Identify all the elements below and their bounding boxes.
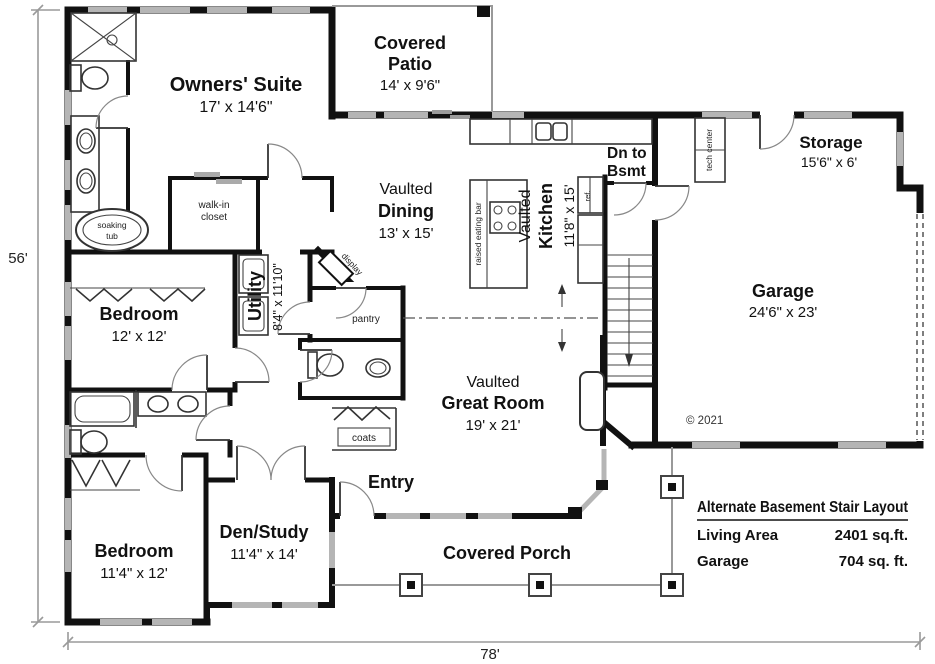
hall-door (235, 348, 269, 382)
garage-dims: 24'6" x 23' (749, 304, 818, 321)
kitchen-prefix: Vaulted (517, 189, 534, 242)
porch-posts (400, 476, 683, 596)
ref-label: ref. (583, 191, 592, 202)
sink (366, 359, 390, 377)
kitchen-label: Kitchen (536, 183, 556, 249)
walk-in-closet-label-1: walk-in (197, 200, 229, 211)
garage-label: Garage (752, 281, 814, 301)
dining-prefix: Vaulted (379, 181, 432, 198)
tech-center-label: tech center (704, 129, 714, 171)
owners-suite-dims: 17' x 14'6" (199, 99, 272, 116)
porch-post (661, 476, 683, 498)
vanity-double-sink (138, 392, 206, 416)
porch-post (400, 574, 422, 596)
bedroom11-dims: 11'4" x 12' (100, 565, 168, 582)
toilet (70, 430, 107, 454)
storage-dims: 15'6" x 6' (801, 154, 857, 170)
bedroom12-label: Bedroom (99, 304, 178, 324)
toilet (308, 352, 343, 378)
width-dimension: 78' (480, 646, 500, 663)
vault-ridge-line (403, 284, 598, 352)
copyright-label: © 2021 (686, 415, 723, 427)
patio-dims: 14' x 9'6" (380, 77, 440, 94)
porch-post (529, 574, 551, 596)
entry-label: Entry (368, 472, 414, 492)
height-dimension: 56' (8, 250, 28, 267)
dn-to-bsmt-1: Dn to (607, 145, 647, 162)
bedroom11-closet (70, 460, 140, 490)
kitchen-dims: 11'8" x 15' (561, 185, 577, 248)
utility-dims: 8'4" x 11'10" (271, 263, 285, 331)
bedroom11-label: Bedroom (94, 541, 173, 561)
great-room-dims: 19' x 21' (466, 417, 521, 434)
storage-label: Storage (799, 133, 862, 152)
great-room-prefix: Vaulted (466, 374, 519, 391)
master-bath-fixtures (70, 13, 148, 251)
fireplace (580, 372, 604, 430)
bathtub (70, 392, 134, 426)
patio-label-1: Covered (374, 33, 446, 53)
den-study-label: Den/Study (219, 522, 308, 542)
floor-plan-page: Owners' Suite 17' x 14'6" Covered Patio … (0, 0, 935, 664)
patio-label-2: Patio (388, 54, 432, 74)
vanity-double-sink (71, 116, 99, 212)
kitchen-counter-2 (578, 215, 603, 283)
hall-bath-fixtures (70, 390, 206, 454)
floor-plan-drawing: Owners' Suite 17' x 14'6" Covered Patio … (0, 0, 935, 664)
walk-in-closet-label-2: closet (201, 212, 227, 223)
porch-post (661, 574, 683, 596)
utility-label: Utility (245, 271, 265, 321)
raised-eating-bar-label: raised eating bar (473, 202, 483, 265)
stairs (607, 255, 653, 376)
kitchen-sink (536, 123, 567, 140)
covered-porch-label: Covered Porch (443, 543, 571, 563)
pantry-label: pantry (352, 314, 380, 325)
patio-slider-door-2 (450, 115, 470, 119)
table-row-value: 704 sq. ft. (839, 553, 908, 570)
area-table: Alternate Basement Stair Layout Living A… (697, 499, 908, 570)
bedroom12-dims: 12' x 12' (112, 328, 167, 345)
dining-dims: 13' x 15' (379, 225, 434, 242)
bedroom11-door (146, 455, 182, 491)
table-row-label: Living Area (697, 527, 779, 544)
patio-post (477, 6, 490, 17)
bedroom12-closet (70, 288, 205, 301)
owners-suite-label: Owners' Suite (170, 74, 303, 96)
soaking-tub (76, 209, 148, 251)
table-row-label: Garage (697, 553, 749, 570)
soaking-tub-label-1: soaking (97, 220, 127, 230)
dining-label: Dining (378, 201, 434, 221)
patio-slider-door (432, 110, 452, 114)
table-row-value: 2401 sq.ft. (835, 527, 908, 544)
toilet (70, 65, 108, 91)
dn-to-bsmt-2: Bsmt (607, 163, 646, 180)
shower (71, 13, 136, 61)
table-title: Alternate Basement Stair Layout (697, 499, 908, 516)
coats-label: coats (352, 433, 376, 444)
stove (490, 202, 520, 233)
den-study-dims: 11'4" x 14' (230, 546, 298, 563)
soaking-tub-label-2: tub (106, 231, 118, 241)
great-room-label: Great Room (441, 393, 544, 413)
